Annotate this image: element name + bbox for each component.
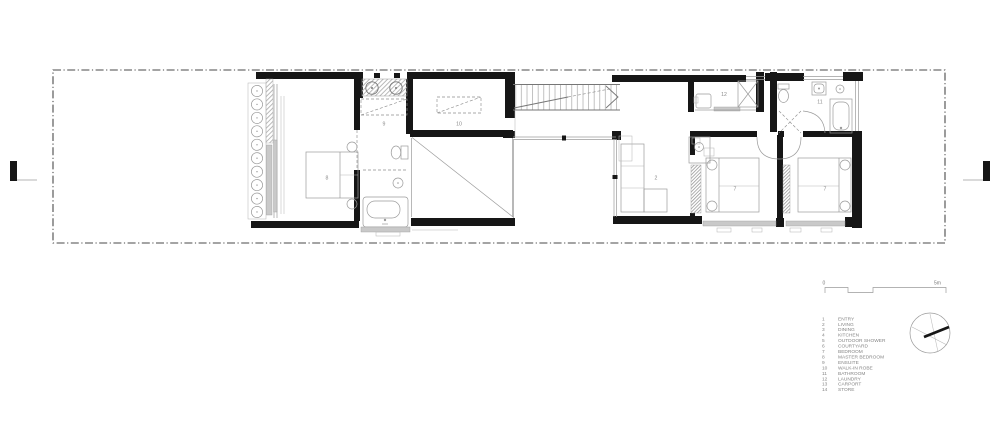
room-label-living: 2 — [655, 176, 658, 182]
room-label-ensuite: 9 — [383, 122, 386, 128]
legend-name-11: BATHROOM — [838, 371, 865, 377]
room-label-bathroom: 11 — [817, 100, 822, 106]
walk-in-robe — [437, 97, 481, 113]
master-bedroom — [281, 96, 358, 214]
legend-num-9: 9 — [822, 360, 825, 366]
legend-num-10: 10 — [822, 365, 828, 371]
legend-name-5: OUTDOOR SHOWER — [838, 338, 886, 344]
legend-num-2: 2 — [822, 322, 825, 328]
room-label-laundry: 12 — [721, 92, 727, 98]
context-mark-left — [10, 161, 37, 181]
legend-name-8: MASTER BEDROOM — [838, 355, 884, 361]
legend-name-2: LIVING — [838, 322, 854, 328]
scale-bar: 0 5m — [823, 281, 947, 294]
deck-steps — [717, 228, 832, 232]
legend: 1 ENTRY 2 LIVING 3 DINING 4 KITCHEN 5 OU… — [822, 316, 886, 393]
legend-name-4: KITCHEN — [838, 333, 860, 339]
legend-name-13: CARPORT — [838, 382, 861, 388]
room-label-walk-in-robe: 10 — [456, 122, 462, 128]
legend-num-11: 11 — [822, 371, 827, 377]
scale-end-label: 5m — [934, 281, 941, 287]
floor-plan-sheet: 8 9 10 2 12 11 7 7 0 5m 1 ENTRY 2 LIVING… — [0, 0, 1000, 426]
room-label-master-bedroom: 8 — [326, 176, 329, 182]
legend-num-1: 1 — [822, 316, 825, 322]
legend-name-1: ENTRY — [838, 316, 855, 322]
legend-name-14: STORE — [838, 387, 854, 393]
legend-name-3: DINING — [838, 327, 855, 333]
site-boundary — [53, 70, 945, 243]
floor-plan-drawing: 8 9 10 2 12 11 7 7 0 5m 1 ENTRY 2 LIVING… — [0, 0, 1000, 426]
bedroom-a — [691, 148, 759, 213]
courtyard — [412, 138, 513, 231]
legend-num-12: 12 — [822, 376, 828, 382]
legend-num-5: 5 — [822, 338, 825, 344]
room-label-bedroom-a: 7 — [734, 187, 737, 193]
legend-num-13: 13 — [822, 382, 828, 388]
legend-num-8: 8 — [822, 355, 825, 361]
louvre-screen — [248, 79, 273, 219]
scale-start-label: 0 — [823, 281, 826, 287]
bedroom-b — [783, 158, 851, 213]
north-arrow — [910, 313, 950, 353]
living-room — [619, 136, 667, 212]
legend-name-10: WALK-IN ROBE — [838, 365, 873, 371]
bathroom — [778, 82, 852, 133]
legend-name-9: ENSUITE — [838, 360, 859, 366]
legend-num-4: 4 — [822, 333, 825, 339]
legend-name-6: COURTYARD — [838, 344, 868, 350]
legend-name-7: BEDROOM — [838, 349, 863, 355]
entry-ramp — [513, 85, 620, 138]
legend-name-12: LAUNDRY — [838, 376, 862, 382]
legend-num-6: 6 — [822, 344, 825, 350]
legend-num-3: 3 — [822, 327, 825, 333]
room-label-bedroom-b: 7 — [824, 187, 827, 193]
legend-num-14: 14 — [822, 387, 828, 393]
ensuite — [361, 99, 410, 236]
context-mark-right — [963, 161, 990, 181]
legend-num-7: 7 — [822, 349, 825, 355]
outdoor-shower — [362, 79, 407, 96]
